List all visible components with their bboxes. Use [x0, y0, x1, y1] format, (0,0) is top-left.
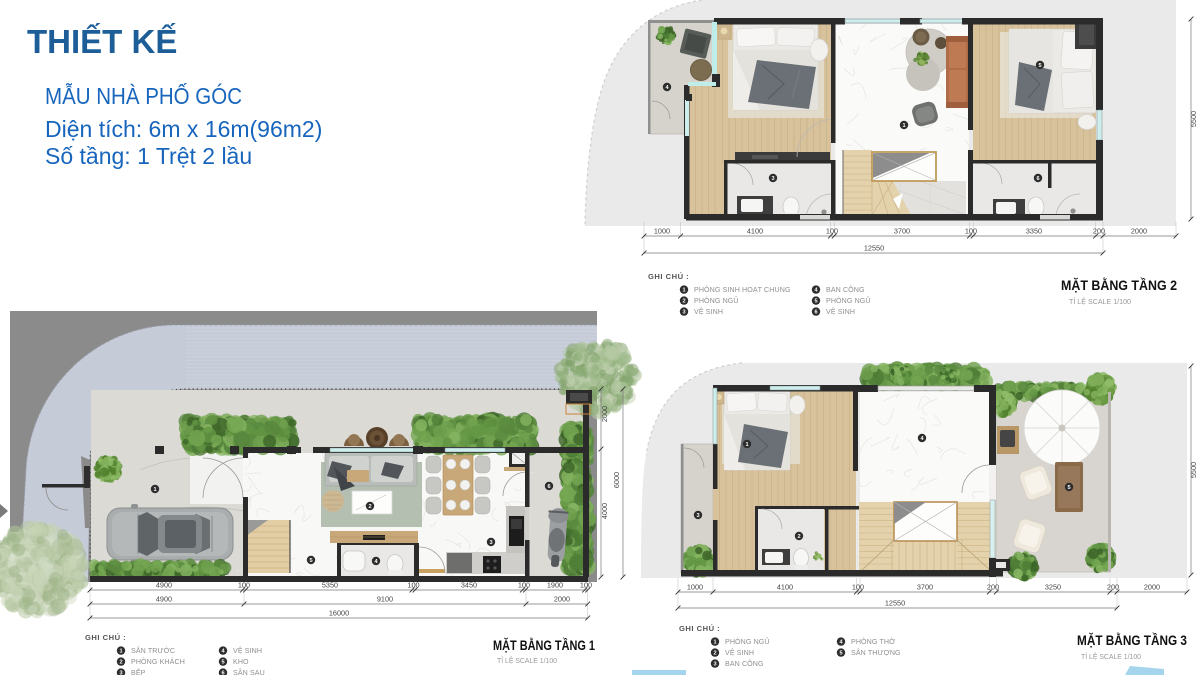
svg-text:6000: 6000 — [612, 472, 621, 488]
svg-text:TỈ LỆ SCALE 1/100: TỈ LỆ SCALE 1/100 — [1081, 652, 1141, 661]
svg-text:2: 2 — [368, 504, 371, 510]
svg-text:MẶT BẰNG TẦNG 3: MẶT BẰNG TẦNG 3 — [1077, 631, 1187, 648]
svg-text:GHI CHÚ :: GHI CHÚ : — [85, 633, 126, 642]
svg-text:VỆ SINH: VỆ SINH — [233, 646, 262, 655]
svg-text:THIẾT KẾ: THIẾT KẾ — [27, 23, 177, 60]
svg-text:1: 1 — [713, 640, 716, 646]
svg-text:5: 5 — [1038, 63, 1041, 69]
svg-text:PHÒNG NGỦ: PHÒNG NGỦ — [694, 296, 739, 305]
svg-text:2000: 2000 — [554, 595, 570, 604]
svg-text:3: 3 — [696, 513, 699, 519]
svg-text:5: 5 — [221, 660, 224, 666]
svg-text:GHI CHÚ :: GHI CHÚ : — [679, 624, 720, 633]
svg-text:1: 1 — [902, 123, 905, 129]
svg-text:200: 200 — [1107, 583, 1119, 592]
svg-text:KHO: KHO — [233, 658, 249, 666]
svg-text:VỆ SINH: VỆ SINH — [725, 648, 754, 657]
svg-text:MẶT BẰNG TẦNG 2: MẶT BẰNG TẦNG 2 — [1061, 276, 1177, 293]
svg-text:PHÒNG KHÁCH: PHÒNG KHÁCH — [131, 657, 185, 666]
svg-text:TỈ LỆ SCALE 1/100: TỈ LỆ SCALE 1/100 — [1069, 297, 1131, 306]
svg-text:100: 100 — [965, 227, 977, 236]
svg-text:9100: 9100 — [377, 595, 393, 604]
svg-text:3: 3 — [713, 662, 716, 668]
svg-text:3: 3 — [119, 671, 122, 675]
svg-text:6: 6 — [1036, 176, 1039, 182]
svg-text:4900: 4900 — [156, 581, 172, 590]
svg-text:2000: 2000 — [1144, 583, 1160, 592]
svg-text:12550: 12550 — [864, 244, 884, 253]
svg-text:100: 100 — [518, 581, 530, 590]
svg-text:5350: 5350 — [322, 581, 338, 590]
svg-text:2000: 2000 — [1131, 227, 1147, 236]
svg-text:Số tầng: 1 Trệt 2 lầu: Số tầng: 1 Trệt 2 lầu — [45, 143, 252, 169]
svg-text:6: 6 — [814, 310, 817, 316]
svg-text:1000: 1000 — [687, 583, 703, 592]
svg-text:2: 2 — [682, 299, 685, 305]
svg-text:SÂN SAU: SÂN SAU — [233, 668, 265, 675]
svg-text:5: 5 — [1067, 485, 1070, 491]
svg-text:BAN CÔNG: BAN CÔNG — [826, 285, 865, 294]
svg-text:12550: 12550 — [885, 599, 905, 608]
svg-text:5: 5 — [839, 651, 842, 657]
svg-text:1: 1 — [745, 442, 748, 448]
svg-text:MẪU NHÀ PHỐ GÓC: MẪU NHÀ PHỐ GÓC — [45, 81, 242, 109]
svg-text:1: 1 — [153, 487, 156, 493]
svg-text:1000: 1000 — [654, 227, 670, 236]
svg-text:VỆ SINH: VỆ SINH — [694, 307, 723, 316]
svg-text:1: 1 — [119, 649, 122, 655]
svg-text:MẶT BẰNG TẦNG 1: MẶT BẰNG TẦNG 1 — [493, 638, 595, 653]
svg-text:4000: 4000 — [600, 503, 609, 519]
svg-text:3: 3 — [682, 310, 685, 316]
svg-text:4100: 4100 — [777, 583, 793, 592]
svg-text:SÂN THƯỢNG: SÂN THƯỢNG — [851, 648, 901, 657]
svg-text:1: 1 — [682, 288, 685, 294]
svg-text:200: 200 — [1093, 227, 1105, 236]
svg-text:Diện tích: 6m x 16m(96m2): Diện tích: 6m x 16m(96m2) — [45, 116, 322, 142]
svg-text:5: 5 — [309, 558, 312, 564]
svg-text:GHI CHÚ :: GHI CHÚ : — [648, 272, 689, 281]
svg-text:3: 3 — [489, 540, 492, 546]
svg-text:100: 100 — [580, 581, 592, 590]
svg-text:200: 200 — [987, 583, 999, 592]
svg-text:5500: 5500 — [1189, 111, 1198, 127]
svg-text:3: 3 — [771, 176, 774, 182]
svg-text:2: 2 — [797, 534, 800, 540]
svg-text:100: 100 — [826, 227, 838, 236]
svg-text:2000: 2000 — [600, 406, 609, 422]
svg-text:1900: 1900 — [547, 581, 563, 590]
svg-text:PHÒNG THỜ: PHÒNG THỜ — [851, 637, 895, 646]
svg-text:5500: 5500 — [1189, 462, 1198, 478]
svg-text:BAN CÔNG: BAN CÔNG — [725, 659, 764, 668]
svg-text:4900: 4900 — [156, 595, 172, 604]
svg-text:PHÒNG NGỦ: PHÒNG NGỦ — [826, 296, 871, 305]
svg-text:3350: 3350 — [1026, 227, 1042, 236]
svg-text:100: 100 — [407, 581, 419, 590]
svg-text:6: 6 — [221, 671, 224, 675]
svg-text:4100: 4100 — [747, 227, 763, 236]
svg-text:2: 2 — [713, 651, 716, 657]
svg-text:VỆ SINH: VỆ SINH — [826, 307, 855, 316]
svg-text:3700: 3700 — [917, 583, 933, 592]
svg-text:100: 100 — [238, 581, 250, 590]
svg-text:SÂN TRƯỚC: SÂN TRƯỚC — [131, 646, 175, 655]
svg-text:6: 6 — [547, 484, 550, 490]
svg-text:TỈ LỆ SCALE 1/100: TỈ LỆ SCALE 1/100 — [497, 656, 557, 665]
svg-text:100: 100 — [852, 583, 864, 592]
svg-text:BẾP: BẾP — [131, 667, 146, 675]
svg-text:3250: 3250 — [1045, 583, 1061, 592]
svg-text:5: 5 — [814, 299, 817, 305]
svg-text:3450: 3450 — [461, 581, 477, 590]
svg-text:16000: 16000 — [329, 609, 349, 618]
svg-text:3700: 3700 — [894, 227, 910, 236]
svg-text:PHÒNG SINH HOẠT CHUNG: PHÒNG SINH HOẠT CHUNG — [694, 285, 791, 294]
svg-text:2: 2 — [119, 660, 122, 666]
svg-text:PHÒNG NGỦ: PHÒNG NGỦ — [725, 637, 770, 646]
